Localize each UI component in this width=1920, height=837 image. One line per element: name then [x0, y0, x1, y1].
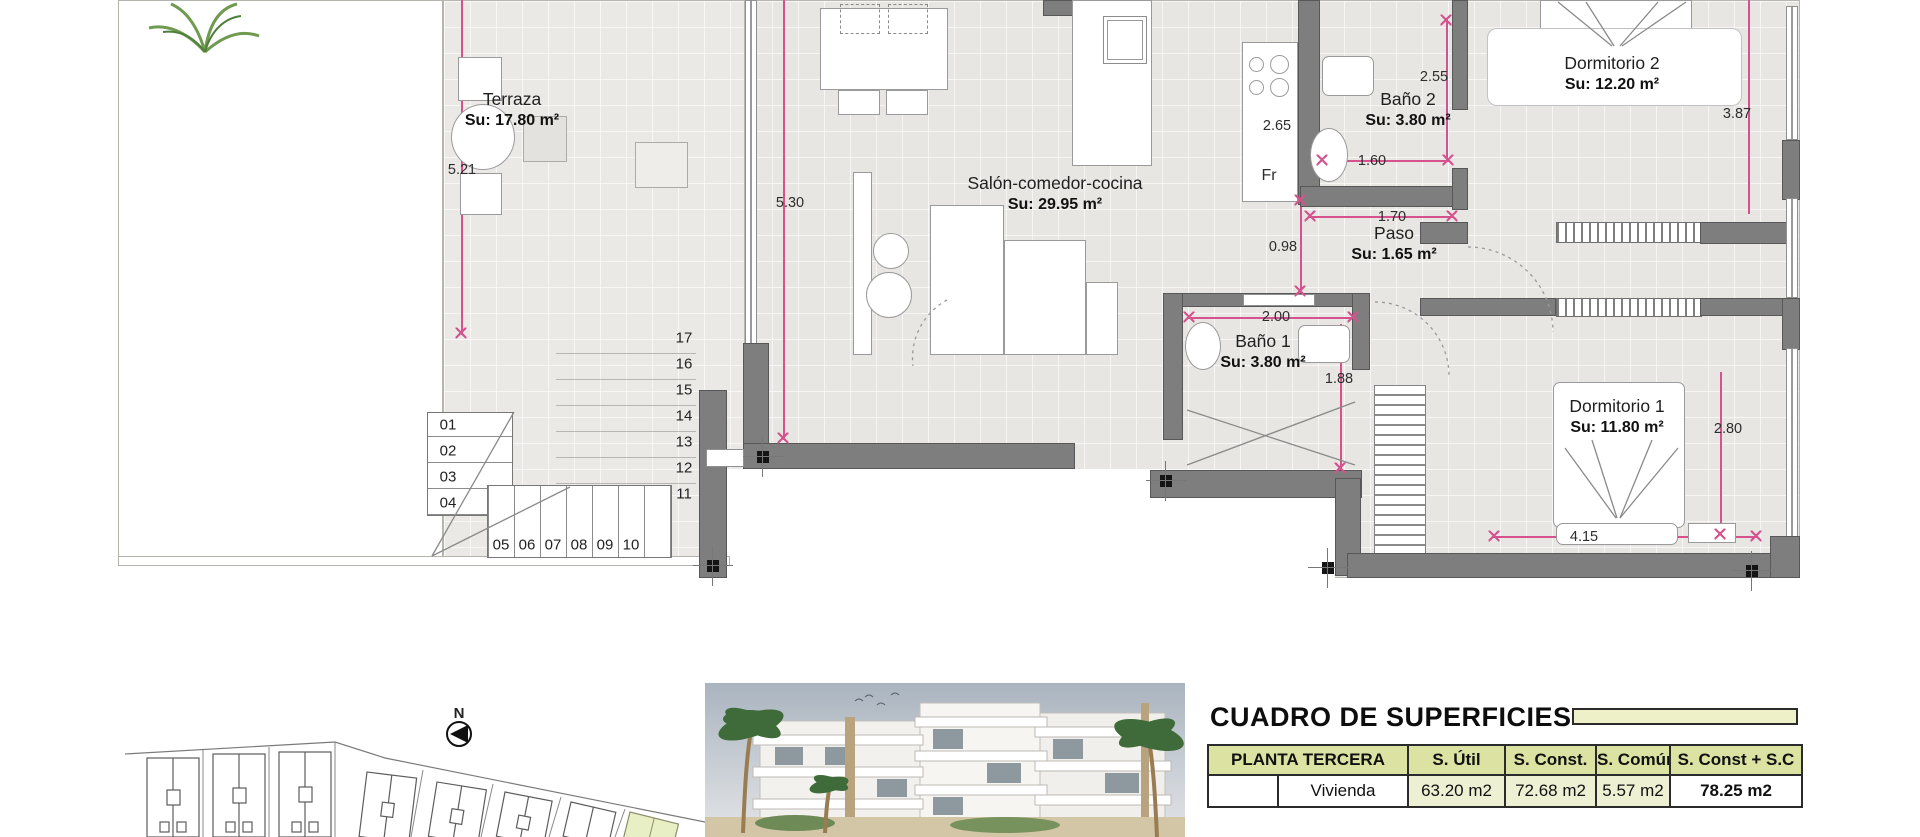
row-spacer-cell: [1208, 775, 1278, 807]
dim-mark: [1295, 195, 1306, 206]
stair-number: 09: [597, 537, 614, 554]
room-label-bano2: Baño 2Su: 3.80 m²: [1365, 88, 1450, 132]
entry-door-leaf: [706, 449, 744, 467]
dim-mark: [1184, 312, 1195, 323]
dim-mark: [1751, 531, 1762, 542]
compass-icon: [446, 721, 472, 747]
exterior-cutout: [1163, 498, 1335, 578]
site-plan: [85, 698, 725, 837]
stair-number: 10: [623, 537, 640, 554]
stair-number: 16: [676, 356, 693, 373]
washbasin: [1185, 322, 1221, 370]
column-dot: [1746, 565, 1758, 577]
dimension-label: 2.80: [1714, 421, 1742, 437]
dimension-label: 5.30: [776, 195, 804, 211]
terrace-chair: [460, 173, 502, 215]
sofa-side: [1086, 282, 1118, 355]
surfaces-table: PLANTA TERCERA S. Útil S. Const. S. Comú…: [1207, 744, 1803, 808]
column-dot: [1322, 562, 1334, 574]
room-name: Baño 2: [1365, 88, 1450, 111]
side-table: [866, 272, 912, 318]
cooktop-burner: [1270, 78, 1289, 97]
col-header-sconst-sc: S. Const + S.C: [1670, 745, 1802, 775]
dimension-label: 1.60: [1358, 153, 1386, 169]
cooktop-burner: [1249, 57, 1264, 72]
room-label-salon: Salón-comedor-cocinaSu: 29.95 m²: [967, 172, 1142, 216]
terrace-window: [745, 0, 757, 345]
wall-dorm1-top: [1420, 298, 1556, 316]
row-label: Vivienda: [1278, 775, 1408, 807]
cooktop-burner: [1270, 55, 1289, 74]
dim-mark: [1715, 529, 1726, 540]
dim-mark: [1295, 286, 1306, 297]
room-name: Paso: [1351, 222, 1436, 245]
room-area: Su: 12.20 m²: [1564, 75, 1659, 96]
balcony-railing: [1556, 222, 1702, 243]
col-header-sconst: S. Const.: [1505, 745, 1596, 775]
wall-salon-bottom: [743, 443, 1075, 469]
wall-right: [1782, 298, 1800, 350]
dining-chair: [838, 90, 880, 115]
dim-mark: [1441, 15, 1452, 26]
dim-mark: [778, 433, 789, 444]
room-label-paso: PasoSu: 1.65 m²: [1351, 222, 1436, 266]
stair-number: 14: [676, 408, 693, 425]
stair-number: 08: [571, 537, 588, 554]
dimension-label: 5.21: [448, 162, 476, 178]
room-label-dormitorio2: Dormitorio 2Su: 12.20 m²: [1564, 52, 1659, 96]
stair-number: 03: [440, 469, 457, 486]
window-right: [1786, 6, 1798, 140]
dim-mark: [1335, 463, 1346, 474]
column-dot: [757, 451, 769, 463]
wall-right: [1782, 140, 1800, 200]
stair-number: 07: [545, 537, 562, 554]
wall-bano2-bottom: [1300, 186, 1466, 207]
room-label-bano1: Baño 1Su: 3.80 m²: [1220, 330, 1305, 374]
wall-corner: [1770, 536, 1800, 578]
wall-bano1-right: [1352, 293, 1370, 370]
terrace-planter: [635, 142, 688, 188]
window-right: [1786, 198, 1798, 298]
compass-north-label: N: [454, 705, 465, 722]
room-name: Terraza: [465, 88, 559, 111]
stair-number: 01: [440, 417, 457, 434]
room-area: Su: 3.80 m²: [1365, 111, 1450, 132]
dim-mark: [1305, 211, 1316, 222]
tv-unit: [853, 172, 872, 355]
room-area: Su: 29.95 m²: [967, 195, 1142, 216]
col-header-planta: PLANTA TERCERA: [1208, 745, 1408, 775]
stair-number: 11: [676, 486, 692, 503]
value-s-comun: 5.57 m2: [1596, 775, 1670, 807]
dim-mark: [1447, 211, 1458, 222]
dim-line: [783, 0, 785, 440]
dim-mark: [1443, 155, 1454, 166]
dimension-label: 2.00: [1262, 309, 1290, 325]
wall-bottom: [1347, 553, 1792, 578]
room-area: Su: 17.80 m²: [465, 111, 559, 132]
stair-number: 12: [676, 460, 693, 477]
dimension-label: 0.98: [1269, 239, 1297, 255]
dimension-label: 2.55: [1420, 69, 1448, 85]
nightstand: [1688, 523, 1736, 543]
wall-bano1-bottom: [1150, 470, 1362, 498]
dim-mark: [1317, 155, 1328, 166]
wardrobe: [1374, 385, 1426, 557]
dim-mark: [456, 328, 467, 339]
table-title: CUADRO DE SUPERFICIES: [1210, 702, 1572, 733]
column-dot: [707, 560, 719, 572]
wall-column: [1452, 168, 1468, 210]
wall-corridor: [1700, 222, 1792, 244]
dim-mark: [1489, 531, 1500, 542]
dimension-label: 3.87: [1723, 106, 1751, 122]
wall-dorm1-top: [1700, 298, 1792, 316]
stair-wall: [699, 390, 727, 578]
floorplan-page: 01020304 050607080910 17161514131211 Fr: [0, 0, 1920, 837]
room-area: Su: 1.65 m²: [1351, 245, 1436, 266]
value-s-const-sc: 78.25 m2: [1670, 775, 1802, 807]
kitchen-sink: [1103, 16, 1147, 64]
cooktop-burner: [1249, 80, 1264, 95]
column-dot: [1160, 475, 1172, 487]
wall-bano1-left: [1163, 293, 1183, 440]
dining-chair-hidden: [888, 4, 928, 34]
left-terrace-outline: [118, 0, 443, 557]
room-name: Baño 1: [1220, 330, 1305, 353]
dim-line: [1720, 372, 1722, 536]
bidet: [1298, 325, 1350, 363]
dimension-label: 1.70: [1378, 209, 1406, 225]
value-s-util: 63.20 m2: [1408, 775, 1505, 807]
building-render-image: [705, 683, 1185, 837]
stair-number: 04: [440, 495, 457, 512]
room-label-terraza: TerrazaSu: 17.80 m²: [465, 88, 559, 132]
dimension-label: 4.15: [1570, 529, 1598, 545]
value-s-const: 72.68 m2: [1505, 775, 1596, 807]
dimension-label: 2.65: [1263, 118, 1291, 134]
room-label-dormitorio1: Dormitorio 1Su: 11.80 m²: [1569, 395, 1664, 439]
stair-number: 05: [493, 537, 510, 554]
wall-column: [1452, 0, 1468, 110]
dim-mark: [1348, 312, 1359, 323]
fridge-label: Fr: [1261, 167, 1276, 185]
col-header-sutil: S. Útil: [1408, 745, 1505, 775]
sofa-chaise: [1004, 240, 1086, 355]
room-area: Su: 11.80 m²: [1569, 418, 1664, 439]
dimension-label: 1.88: [1325, 371, 1353, 387]
stair-number: 13: [676, 434, 693, 451]
room-name: Salón-comedor-cocina: [967, 172, 1142, 195]
room-area: Su: 3.80 m²: [1220, 353, 1305, 374]
exterior-cutout: [727, 469, 1163, 578]
room-name: Dormitorio 1: [1569, 395, 1664, 418]
stair-number: 15: [676, 382, 693, 399]
col-header-scomun: S. Común: [1596, 745, 1670, 775]
title-accent-bar: [1572, 708, 1798, 725]
stair-number: 06: [519, 537, 536, 554]
dining-chair-hidden: [840, 4, 880, 34]
dining-chair: [886, 90, 928, 115]
sofa: [930, 205, 1004, 355]
stair-number: 17: [676, 330, 693, 347]
side-table: [873, 233, 909, 269]
room-name: Dormitorio 2: [1564, 52, 1659, 75]
stair-number: 02: [440, 443, 457, 460]
window-right: [1786, 348, 1798, 538]
window-railing: [1556, 298, 1702, 317]
